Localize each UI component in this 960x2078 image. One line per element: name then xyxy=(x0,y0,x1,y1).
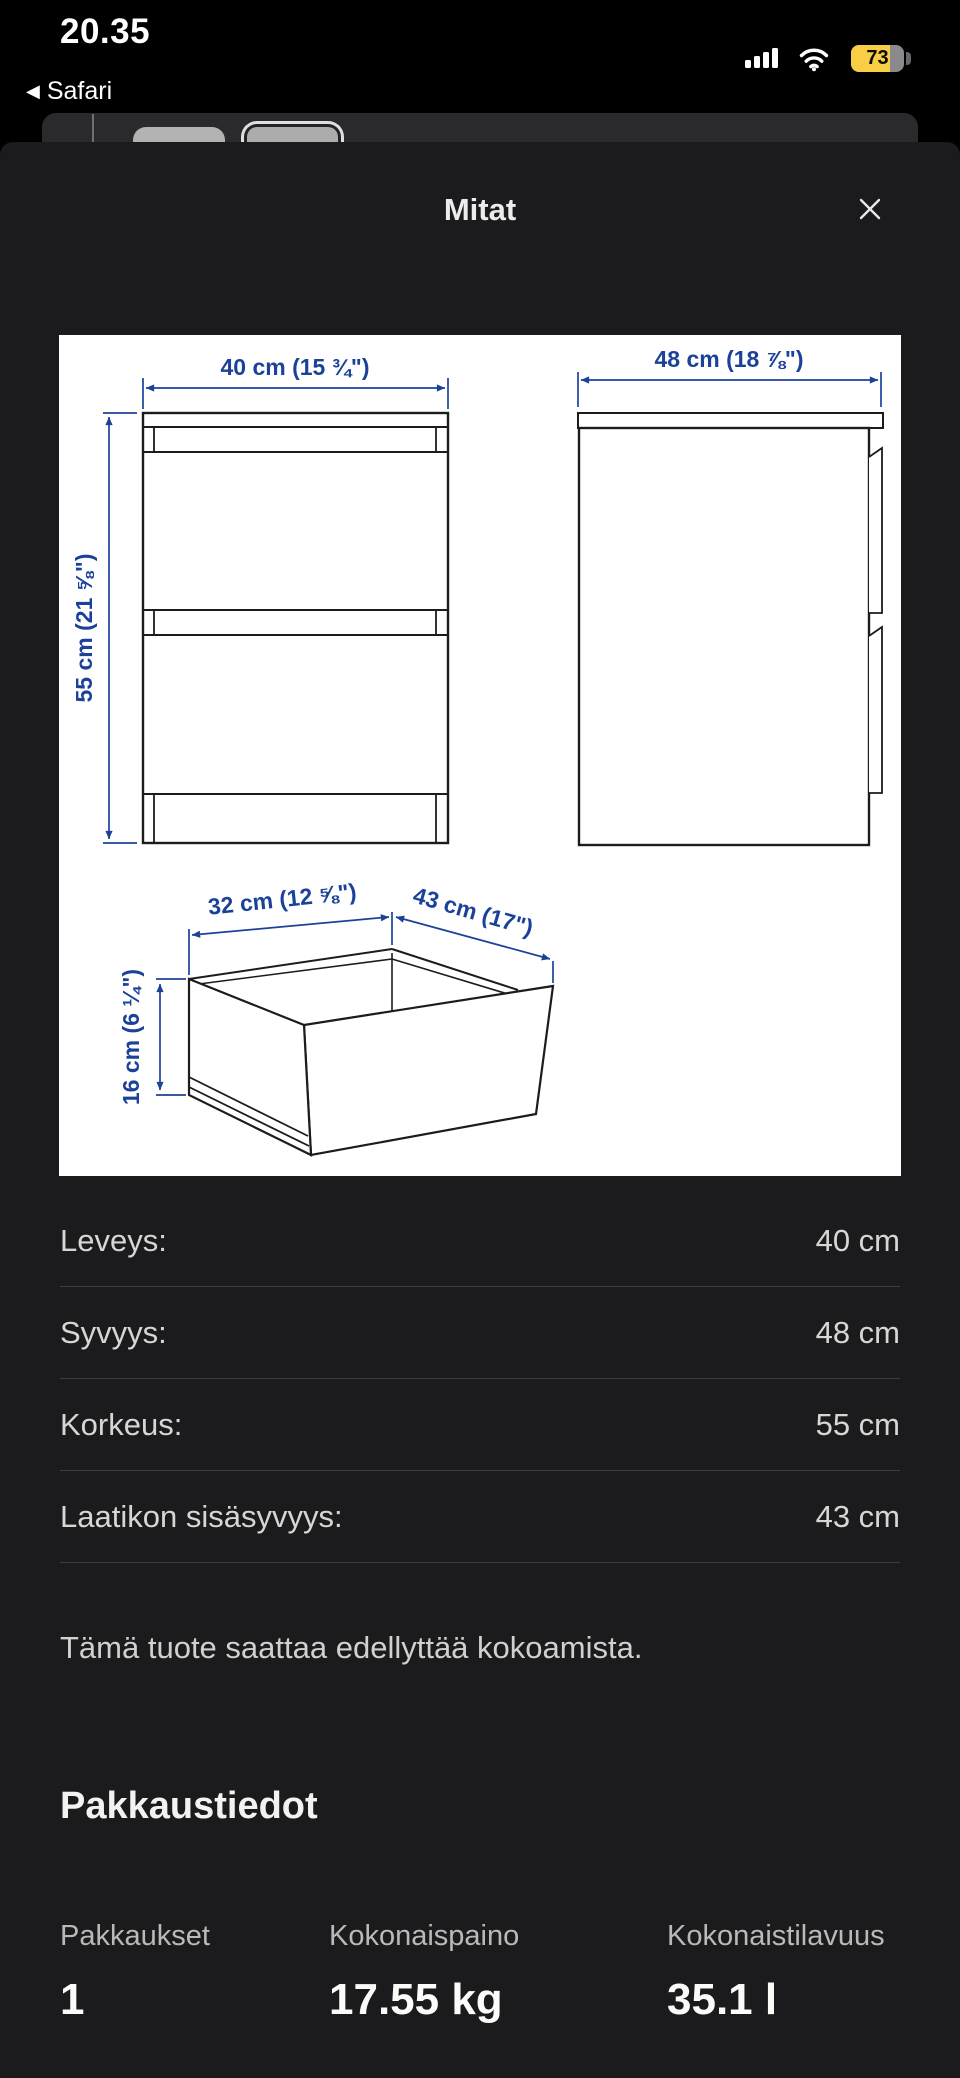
packaging-value: 35.1 l xyxy=(667,1974,885,2026)
packaging-label: Kokonaispaino xyxy=(329,1918,519,1954)
dimension-label: Korkeus: xyxy=(60,1407,182,1443)
drawer-height-dimension-label: 16 cm (6 ¼") xyxy=(118,969,144,1105)
dimension-row-drawer-depth: Laatikon sisäsyvyys: 43 cm xyxy=(60,1471,900,1563)
wifi-icon xyxy=(797,44,831,72)
signal-strength-icon xyxy=(745,48,791,68)
dimension-row-height: Korkeus: 55 cm xyxy=(60,1379,900,1471)
packaging-column-volume: Kokonaistilavuus 35.1 l xyxy=(667,1918,885,2026)
drawer-width-dimension-label: 32 cm (12 ⅝") xyxy=(207,878,358,919)
product-dimension-drawing: 40 cm (15 ¾") 55 cm (21 ⅝") 48 cm (18 ⅞"… xyxy=(59,335,901,1176)
phone-screen: 20.35 73 ◀ Safari Mitat xyxy=(0,0,960,2078)
background-divider xyxy=(92,114,94,142)
drawer-depth-dimension-label: 43 cm (17") xyxy=(410,882,536,941)
back-label: Safari xyxy=(47,77,112,106)
dimension-list: Leveys: 40 cm Syvyys: 48 cm Korkeus: 55 … xyxy=(60,1195,900,1563)
dimension-value: 40 cm xyxy=(816,1223,900,1259)
close-button[interactable] xyxy=(853,192,887,226)
back-chevron-icon: ◀ xyxy=(26,79,40,104)
packaging-column-weight: Kokonaispaino 17.55 kg xyxy=(329,1918,519,2026)
dimension-value: 48 cm xyxy=(816,1315,900,1351)
battery-icon: 73 xyxy=(851,45,904,72)
dimension-row-depth: Syvyys: 48 cm xyxy=(60,1287,900,1379)
back-to-safari-button[interactable]: ◀ Safari xyxy=(26,77,112,106)
dimension-label: Laatikon sisäsyvyys: xyxy=(60,1499,343,1535)
packaging-label: Kokonaistilavuus xyxy=(667,1918,885,1954)
sheet-title: Mitat xyxy=(0,190,960,230)
dimension-label: Leveys: xyxy=(60,1223,167,1259)
packaging-value: 17.55 kg xyxy=(329,1974,519,2026)
status-time: 20.35 xyxy=(60,12,150,52)
battery-nub xyxy=(906,52,911,65)
dimension-row-width: Leveys: 40 cm xyxy=(60,1195,900,1287)
packaging-value: 1 xyxy=(60,1974,210,2026)
front-height-dimension-label: 55 cm (21 ⅝") xyxy=(71,554,97,703)
dimension-drawing-panel: 40 cm (15 ¾") 55 cm (21 ⅝") 48 cm (18 ⅞"… xyxy=(59,335,901,1176)
front-width-dimension-label: 40 cm (15 ¾") xyxy=(221,354,370,380)
dimension-value: 43 cm xyxy=(816,1499,900,1535)
assembly-note: Tämä tuote saattaa edellyttää kokoamista… xyxy=(60,1626,900,1670)
packaging-heading: Pakkaustiedot xyxy=(60,1782,318,1830)
dimension-label: Syvyys: xyxy=(60,1315,167,1351)
side-depth-dimension-label: 48 cm (18 ⅞") xyxy=(655,346,804,372)
packaging-label: Pakkaukset xyxy=(60,1918,210,1954)
battery-percent: 73 xyxy=(851,45,904,72)
dimension-value: 55 cm xyxy=(816,1407,900,1443)
packaging-column-packages: Pakkaukset 1 xyxy=(60,1918,210,2026)
close-icon xyxy=(857,196,883,222)
